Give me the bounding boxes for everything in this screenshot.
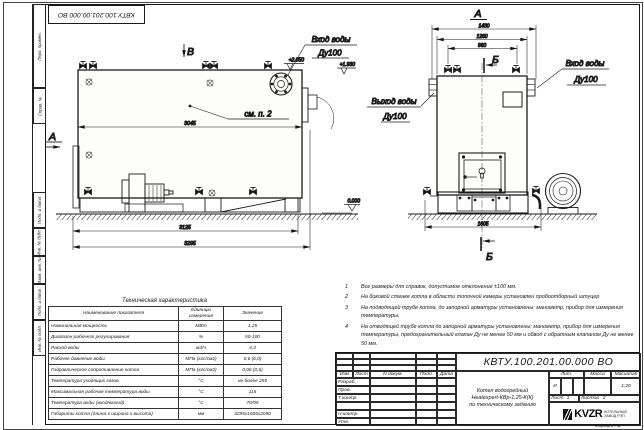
- role-cell: [437, 386, 456, 394]
- table-row: Рабочее давление водыМПа (кгс/см2)0,6 (6…: [49, 354, 282, 365]
- dim-3295: 3295: [184, 241, 196, 247]
- note-item: 4На отводящей трубе котла до запорной ар…: [345, 323, 637, 349]
- role-razrab: Разраб.: [336, 378, 370, 386]
- role-tkontr: Т.контр.: [336, 394, 370, 402]
- tech-header-row: Наименование показателя Единицы измерени…: [49, 307, 282, 321]
- inlet-label-front: Вход воды: [566, 59, 605, 68]
- description-cell: Котел водогрейный Heatexpert-КВр-1,25-К(…: [456, 371, 549, 426]
- view-a-label: А: [48, 131, 56, 143]
- notes-list: 1Все размеры для справок, допустимое отк…: [345, 283, 637, 350]
- cell: °С: [179, 398, 224, 409]
- role-blank: [336, 402, 370, 410]
- section-b-top-label: Б: [492, 54, 499, 66]
- cell: %: [179, 332, 224, 343]
- role-cell: [437, 410, 456, 418]
- role-cell: [370, 378, 416, 386]
- sheet-value: 1: [567, 396, 570, 401]
- role-cell: [370, 418, 416, 426]
- elev-1930-mark: [337, 68, 356, 74]
- role-nkontr: Н.контр.: [336, 410, 370, 418]
- role-cell: [437, 394, 456, 402]
- kvzr-logo-icon: [563, 409, 572, 420]
- outlet-leader: [421, 93, 434, 106]
- tech-header-units: Единицы измерения: [179, 307, 224, 321]
- cell: Расход воды: [49, 343, 179, 354]
- dim-3125: 3125: [179, 225, 191, 231]
- sheets-value: 2: [603, 396, 606, 401]
- role-cell: [416, 410, 437, 418]
- title-block: Изм Лист N докум. Подп. Дата Разраб. Про…: [335, 352, 640, 425]
- hdr-izm: Изм: [336, 371, 353, 378]
- lit-header: Лит.: [549, 371, 584, 378]
- scale-header: Масштаб: [611, 371, 641, 378]
- note-item: 2На боковой стенке котла в области топоч…: [345, 293, 637, 302]
- table-row: Расход водым3/ч4,3: [49, 343, 282, 354]
- dim-1605: 1605: [477, 222, 488, 228]
- cell: °С: [179, 376, 224, 387]
- table-row: Температура воды (вход/выход)°С70/95: [49, 398, 282, 409]
- cell: не более 250: [224, 376, 282, 387]
- inlet-dn-front: Ду100: [573, 75, 598, 84]
- role-utv: Утв.: [336, 418, 370, 426]
- outlet-dn: Ду100: [382, 112, 407, 121]
- sheet-cell: Лист 1: [549, 395, 579, 402]
- cell: 0,06 (0,6): [224, 365, 282, 376]
- table-row: Габариты котла (длина х ширина х высота)…: [49, 409, 282, 420]
- role-cell: [416, 402, 437, 410]
- description-line1: Котел водогрейный: [477, 388, 528, 395]
- elev-1930: +1.930: [340, 62, 356, 68]
- hdr-data: Дата: [437, 371, 456, 378]
- cell: 0,6 (6,0): [224, 354, 282, 365]
- outlet-flange: [429, 79, 437, 96]
- cell: МПа (кгс/см2): [179, 365, 224, 376]
- lit-cell-3: [573, 378, 584, 395]
- note-text: Все размеры для справок, допустимое откл…: [361, 283, 637, 292]
- note-number: 1: [345, 283, 361, 292]
- section-b-bottom-label: Б: [486, 251, 493, 263]
- view-b-label: В: [187, 46, 194, 58]
- front-view-label: А: [473, 8, 481, 20]
- fan-elbow: [532, 195, 540, 209]
- role-cell: [370, 386, 416, 394]
- outlet-label: Выход воды: [372, 97, 417, 106]
- cell: 70/95: [224, 398, 282, 409]
- sheets-label: Листов: [581, 396, 599, 401]
- section-b-bottom: [481, 237, 495, 251]
- cell: Рабочее давление воды: [49, 354, 179, 365]
- ground-hatch-side: [56, 215, 358, 221]
- ground-hatch-front: [408, 215, 597, 221]
- cell: 4,3: [224, 343, 282, 354]
- format-label: Формат А3: [575, 424, 640, 429]
- inlet-leader-front: [537, 69, 562, 88]
- lit-cell-2: [561, 378, 573, 395]
- role-cell: [437, 402, 456, 410]
- cell: Температура уходящих газов: [49, 376, 179, 387]
- mass-value: [584, 378, 611, 395]
- table-row: Гидравлическое сопротивление котлаМПа (к…: [49, 365, 282, 376]
- role-cell: [370, 402, 416, 410]
- table-row: Температура уходящих газов°Сне более 250: [49, 376, 282, 387]
- table-row: Диапазон рабочего регулирования%50-100: [49, 332, 282, 343]
- kvzr-logo-subtitle: КОТЕЛЬНЫЙ ЗАВОД РЭП: [604, 410, 627, 418]
- dim-1430: 1430: [478, 24, 489, 30]
- cell: Максимальная рабочая температура воды: [49, 387, 179, 398]
- cell: 115: [224, 387, 282, 398]
- role-cell: [416, 386, 437, 394]
- sheets-cell: Листов 2: [579, 395, 641, 402]
- elev-0000: 0.000: [347, 199, 360, 205]
- cell: 3295х1605х2050: [224, 409, 282, 420]
- note-text: На подводящей трубе котла, до запорной а…: [361, 304, 637, 322]
- role-cell: [416, 418, 437, 426]
- sheet-label: Лист: [551, 396, 564, 401]
- boiler-body-side: [78, 70, 302, 198]
- note-number: 3: [345, 304, 361, 322]
- blueprint-page: Перв. примен. Справ. № Подп. и дата Инв.…: [0, 0, 644, 430]
- side-outlet-assembly: [302, 88, 334, 129]
- description-line3: по техническому заданию: [469, 402, 536, 409]
- inlet-dn-side: Ду100: [317, 49, 342, 58]
- tech-table-title: Техническая характеристика: [48, 298, 281, 304]
- inlet-label-side: Вход воды: [312, 35, 351, 44]
- kvzr-sub-line2: ЗАВОД РЭП: [604, 414, 627, 418]
- cell: Габариты котла (длина х ширина х высота): [49, 409, 179, 420]
- description-line2: Heatexpert-КВр-1,25-К(К): [472, 395, 534, 402]
- role-cell: [437, 378, 456, 386]
- callout-text: см. п. 2: [244, 110, 272, 119]
- cell: МПа (кгс/см2): [179, 354, 224, 365]
- inlet-flange: [527, 79, 535, 96]
- tech-header-value: Значение: [224, 307, 282, 321]
- role-cell: [370, 410, 416, 418]
- cell: Гидравлическое сопротивление котла: [49, 365, 179, 376]
- note-item: 3На подводящей трубе котла, до запорной …: [345, 304, 637, 322]
- cell: °С: [179, 387, 224, 398]
- tech-characteristics: Техническая характеристика Наименование …: [48, 298, 281, 420]
- kvzr-logo-text: KVZR: [574, 408, 602, 420]
- role-prov: Пров.: [336, 386, 370, 394]
- base-valve-right: [533, 187, 540, 194]
- dim-960: 960: [478, 43, 487, 49]
- table-row: Номинальная мощностьМВт1,25: [49, 321, 282, 332]
- scale-value: 1:20: [611, 378, 641, 395]
- cell: м3/ч: [179, 343, 224, 354]
- dim-1260: 1260: [476, 34, 487, 40]
- note-number: 4: [345, 323, 361, 349]
- tech-table: Наименование показателя Единицы измерени…: [48, 306, 282, 420]
- table-row: Максимальная рабочая температура воды°С1…: [49, 387, 282, 398]
- hdr-podp: Подп.: [416, 371, 437, 378]
- cell: 50-100: [224, 332, 282, 343]
- side-view: 3045 3125 3295 В А см. п. 2 +2.050: [46, 35, 360, 250]
- cell: мм: [179, 409, 224, 420]
- doc-number: КВТУ.100.201.00.000 ВО: [456, 353, 641, 371]
- role-cell: [416, 378, 437, 386]
- cell: 1,25: [224, 321, 282, 332]
- role-cell: [437, 418, 456, 426]
- cell: Температура воды (вход/выход): [49, 398, 179, 409]
- lit-value: И: [549, 378, 561, 395]
- cell: Номинальная мощность: [49, 321, 179, 332]
- elev-0000-mark: [322, 205, 360, 214]
- note-text: На боковой стенке котла в области топочн…: [361, 293, 637, 302]
- base-valve-left: [424, 188, 431, 195]
- base-frame: [80, 198, 300, 212]
- note-text: На отводящей трубе котла до запорной арм…: [361, 323, 637, 349]
- hdr-dokum: N докум.: [370, 371, 416, 378]
- fan-blower: [546, 174, 581, 215]
- note-item: 1Все размеры для справок, допустимое отк…: [345, 283, 637, 292]
- note-number: 2: [345, 293, 361, 302]
- cell: МВт: [179, 321, 224, 332]
- mass-header: Масса: [584, 371, 611, 378]
- cell: Диапазон рабочего регулирования: [49, 332, 179, 343]
- front-view: А: [367, 8, 609, 263]
- role-cell: [416, 394, 437, 402]
- tech-header-name: Наименование показателя: [49, 307, 179, 321]
- dim-3045: 3045: [184, 121, 196, 127]
- role-cell: [370, 394, 416, 402]
- kvzr-logo: KVZR КОТЕЛЬНЫЙ ЗАВОД РЭП: [549, 402, 641, 426]
- hdr-list: Лист: [353, 371, 370, 378]
